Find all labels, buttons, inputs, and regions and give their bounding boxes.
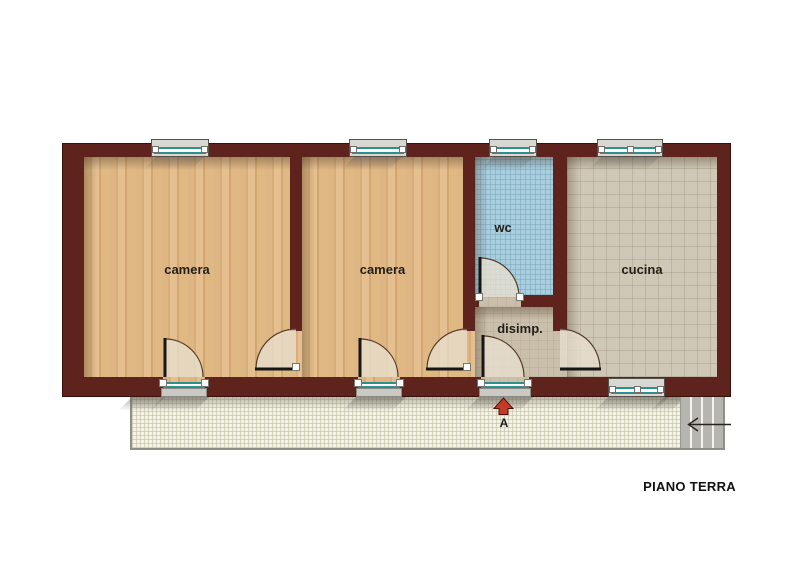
floor-plan: camera camera wc disimp. cucina A PIANO … — [0, 0, 800, 566]
room-label-camera-1: camera — [84, 263, 290, 277]
window-peg — [634, 386, 641, 393]
door-opening-camera1-camera2 — [290, 331, 302, 377]
window-cucina-top — [597, 139, 663, 157]
door-opening-camera2-disimp — [463, 331, 475, 377]
window-glass — [492, 147, 534, 154]
window-peg — [655, 146, 662, 153]
stairs — [680, 397, 723, 448]
window-peg — [529, 146, 536, 153]
french-window-camera1-sill — [161, 388, 207, 397]
window-peg — [609, 386, 616, 393]
window-peg — [399, 146, 406, 153]
room-disimp — [475, 307, 553, 377]
floor-title: PIANO TERRA — [643, 479, 736, 494]
window-peg — [152, 146, 159, 153]
window-peg — [201, 146, 208, 153]
window-wc-top — [489, 139, 537, 157]
window-glass — [352, 147, 404, 154]
entrance-sill — [479, 388, 531, 397]
window-peg — [627, 146, 634, 153]
room-label-cucina: cucina — [567, 263, 717, 277]
window-camera1-top — [151, 139, 209, 157]
terrace — [130, 397, 725, 450]
window-peg — [598, 146, 605, 153]
door-opening-disimp-cucina — [553, 331, 567, 377]
french-window-camera2-sill — [356, 388, 402, 397]
window-glass — [154, 147, 206, 154]
room-label-wc: wc — [475, 221, 531, 235]
window-peg — [657, 386, 664, 393]
window-peg — [350, 146, 357, 153]
window-peg — [490, 146, 497, 153]
room-label-camera-2: camera — [302, 263, 463, 277]
door-opening-disimp-wc — [479, 295, 521, 307]
window-cucina-bottom — [608, 378, 665, 397]
window-camera2-top — [349, 139, 407, 157]
room-label-disimp: disimp. — [475, 322, 565, 336]
entrance-label: A — [481, 416, 527, 430]
